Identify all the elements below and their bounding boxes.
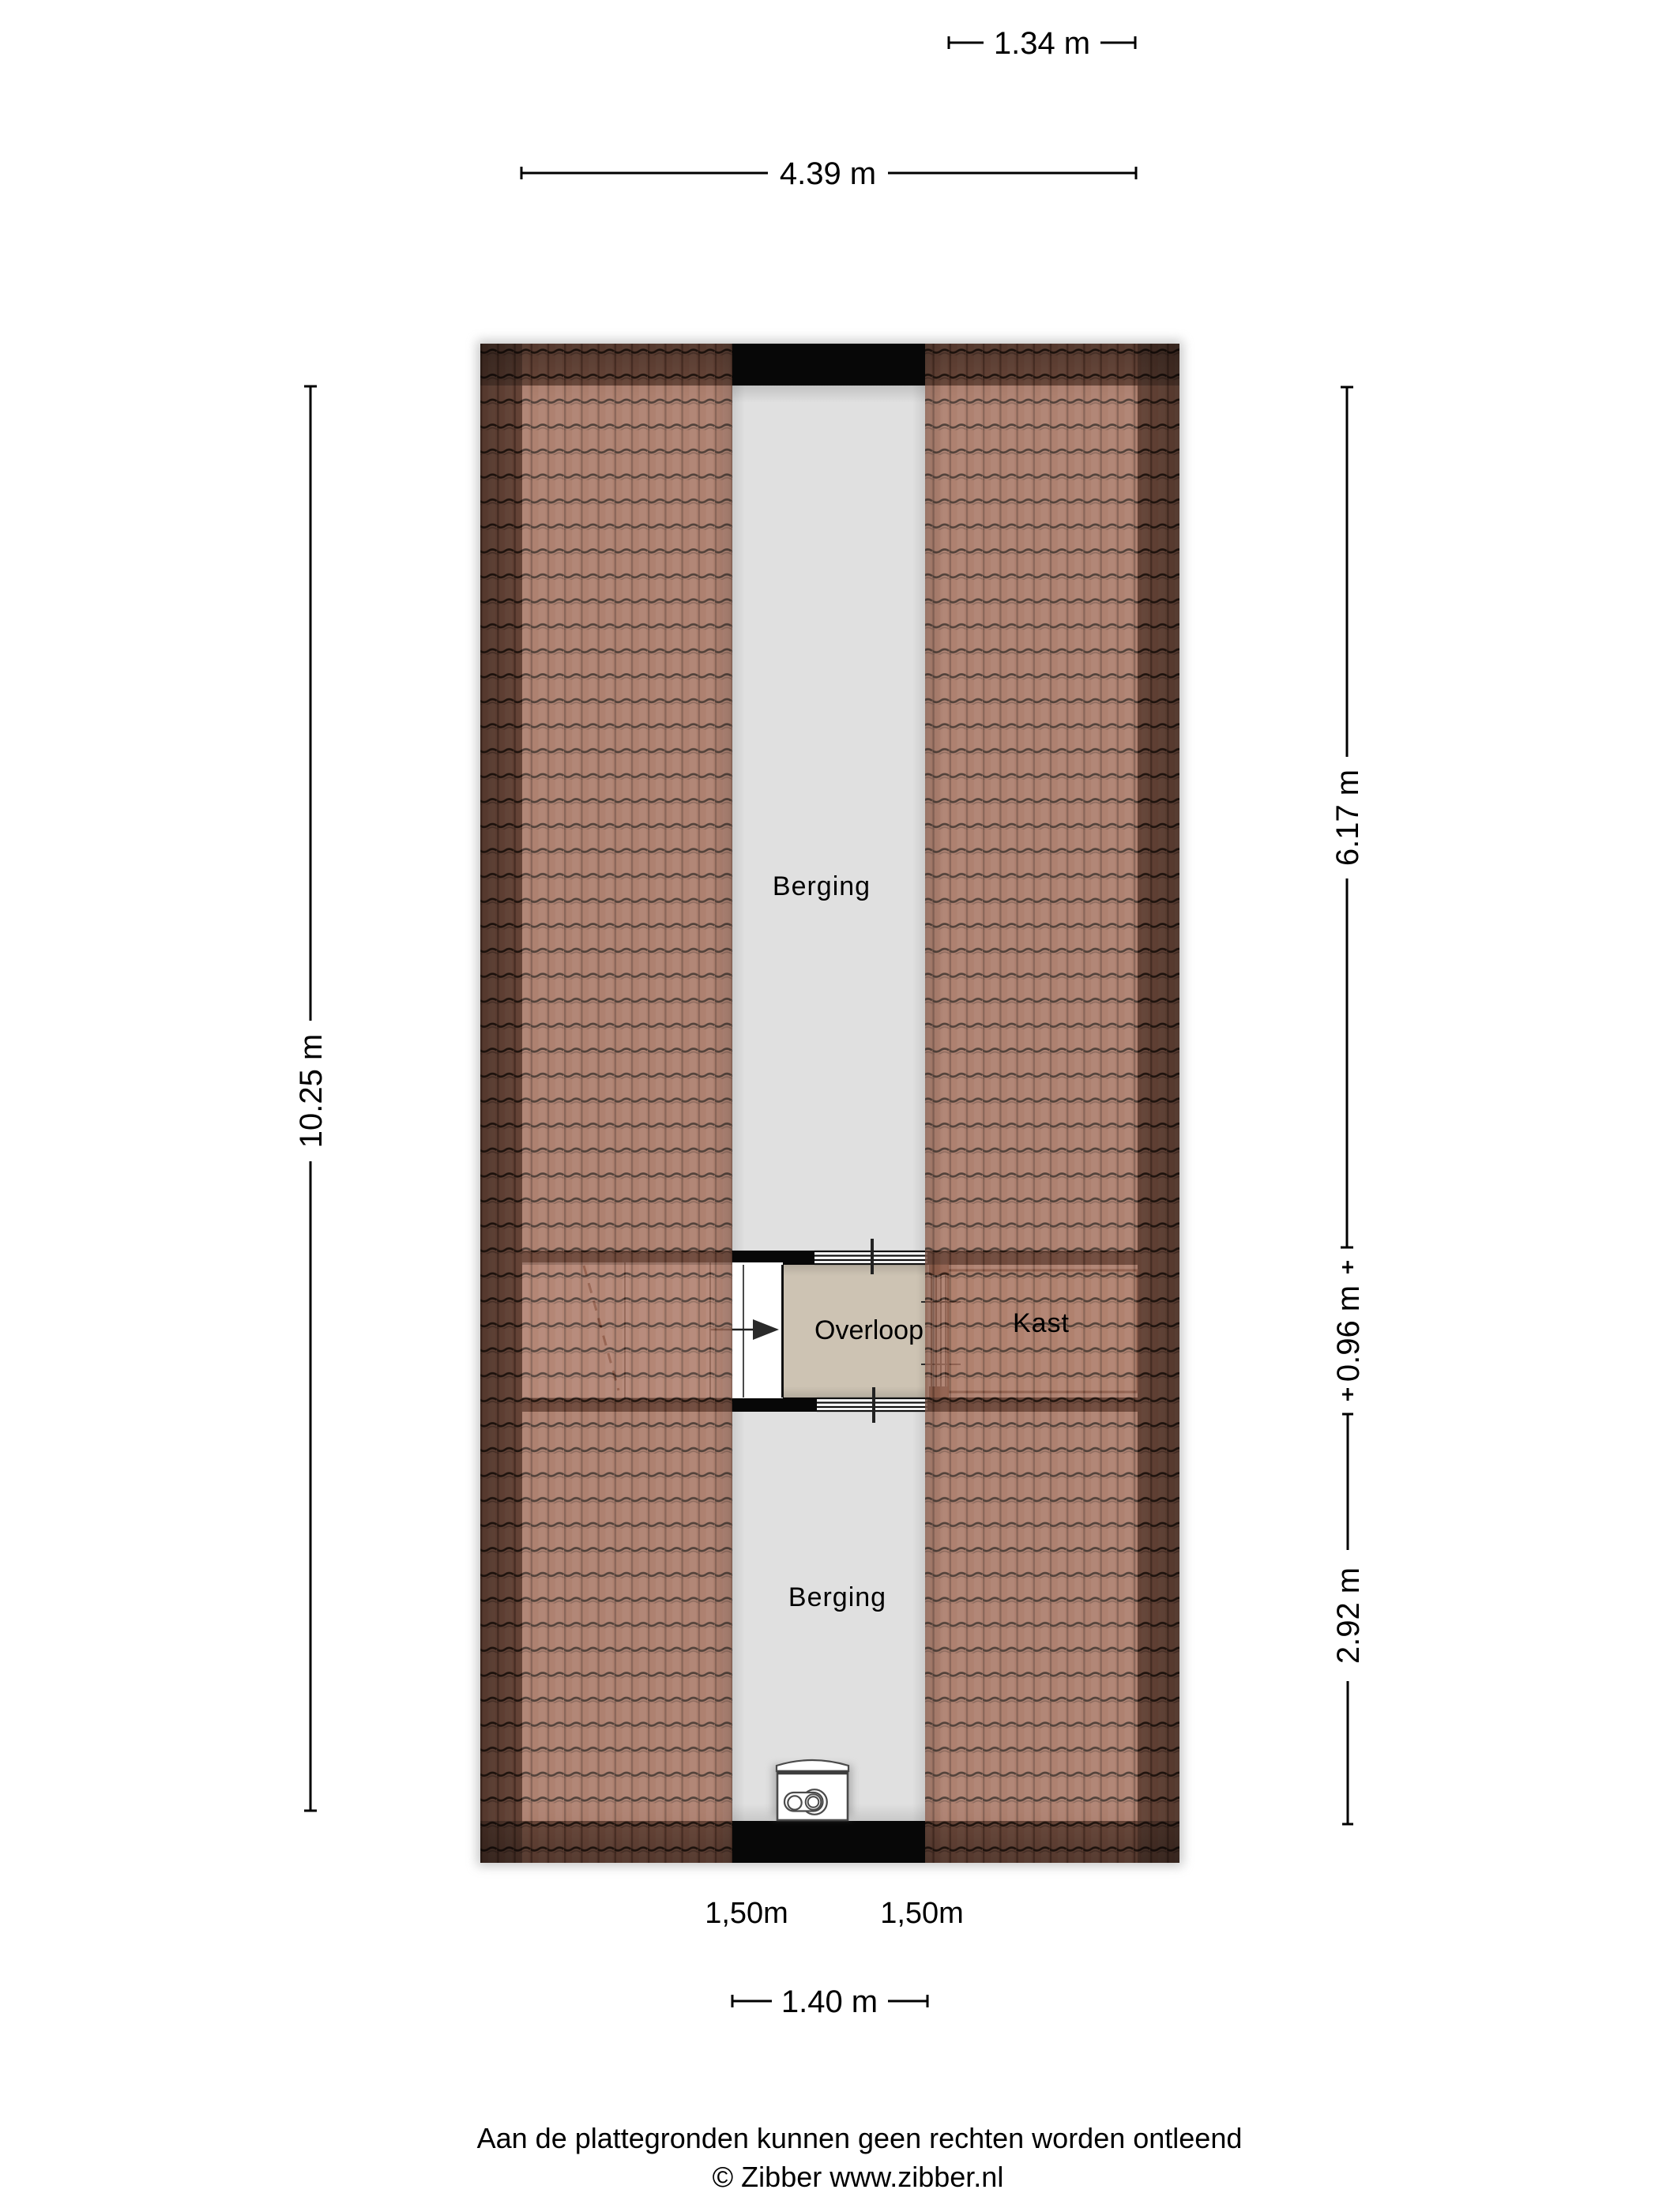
svg-text:0.96 m: 0.96 m xyxy=(1331,1285,1366,1382)
svg-text:Berging: Berging xyxy=(773,871,871,901)
svg-text:1.40 m: 1.40 m xyxy=(781,1984,878,2019)
svg-text:Overloop: Overloop xyxy=(814,1315,924,1345)
svg-text:Berging: Berging xyxy=(788,1582,886,1612)
svg-text:1,50m: 1,50m xyxy=(880,1897,964,1930)
svg-text:1.34 m: 1.34 m xyxy=(994,26,1090,61)
svg-text:Aan de plattegronden kunnen ge: Aan de plattegronden kunnen geen rechten… xyxy=(477,2122,1243,2154)
svg-text:6.17 m: 6.17 m xyxy=(1330,769,1365,866)
svg-text:10.25 m: 10.25 m xyxy=(294,1034,329,1149)
svg-text:1,50m: 1,50m xyxy=(705,1897,788,1930)
svg-text:2.92 m: 2.92 m xyxy=(1331,1567,1366,1664)
svg-text:© Zibber www.zibber.nl: © Zibber www.zibber.nl xyxy=(713,2161,1004,2193)
svg-text:4.39 m: 4.39 m xyxy=(780,156,876,191)
svg-text:Kast: Kast xyxy=(1013,1308,1070,1338)
